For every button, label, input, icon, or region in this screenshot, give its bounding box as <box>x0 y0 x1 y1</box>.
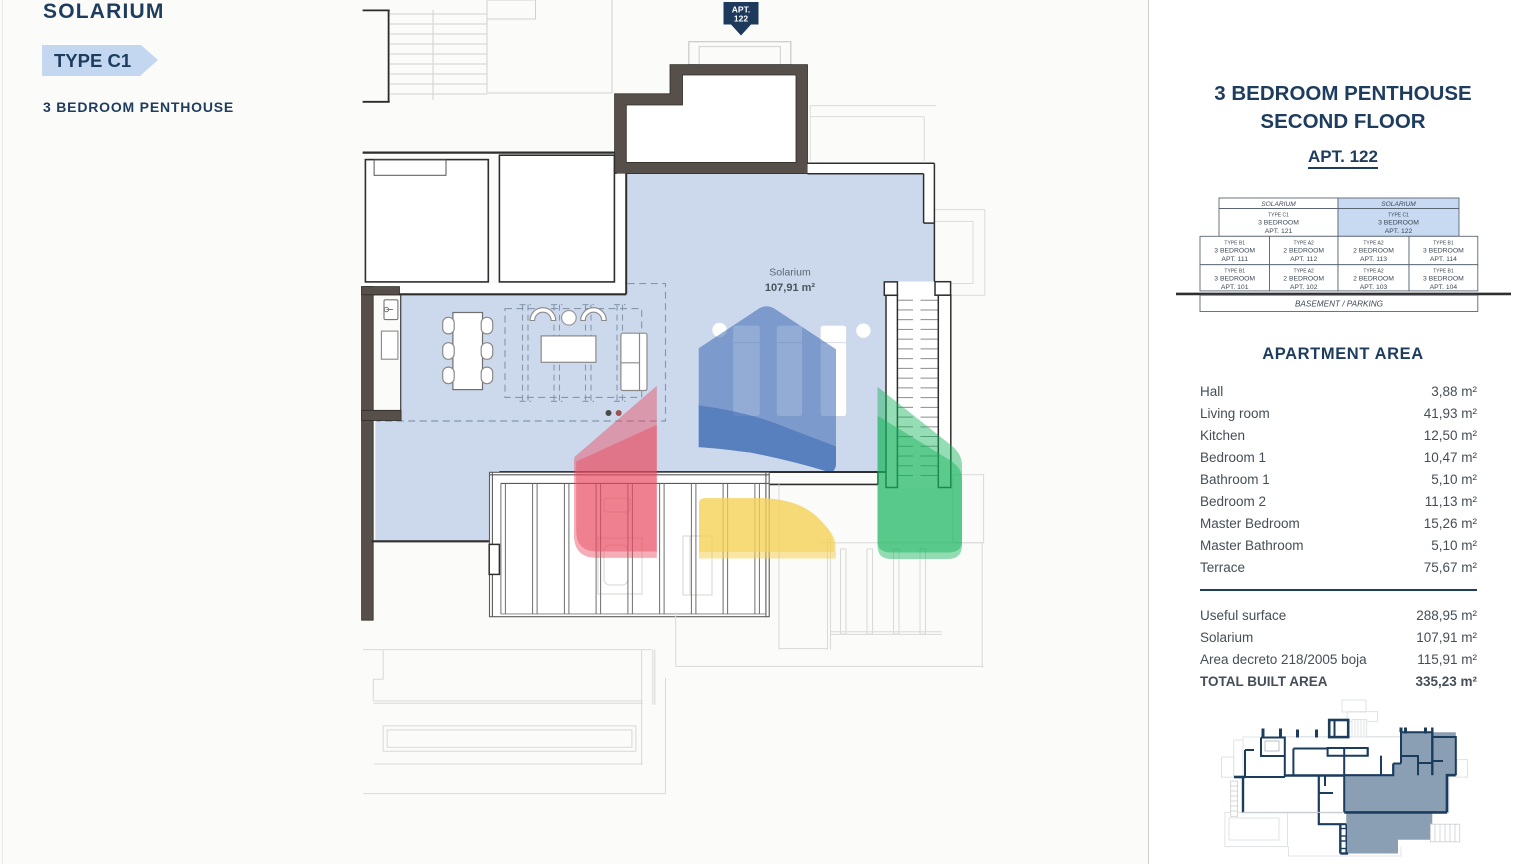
svg-text:TYPE C1: TYPE C1 <box>1268 213 1289 219</box>
svg-text:2 BEDROOM: 2 BEDROOM <box>1353 276 1394 283</box>
svg-text:2 BEDROOM: 2 BEDROOM <box>1353 248 1394 255</box>
svg-text:TYPE A2: TYPE A2 <box>1294 269 1315 275</box>
svg-text:APT. 113: APT. 113 <box>1360 256 1387 263</box>
svg-text:3 BEDROOM: 3 BEDROOM <box>1214 276 1255 283</box>
svg-text:122: 122 <box>734 14 748 24</box>
svg-text:TYPE A2: TYPE A2 <box>1363 269 1384 275</box>
svg-text:3 BEDROOM: 3 BEDROOM <box>1423 276 1464 283</box>
svg-text:3 BEDROOM: 3 BEDROOM <box>1378 220 1419 227</box>
svg-text:TYPE A2: TYPE A2 <box>1294 241 1315 247</box>
svg-text:TYPE B1: TYPE B1 <box>1433 241 1454 247</box>
svg-text:3 BEDROOM: 3 BEDROOM <box>1258 220 1299 227</box>
svg-text:Solarium: Solarium <box>769 267 811 279</box>
svg-text:SOLARIUM: SOLARIUM <box>1261 201 1296 208</box>
svg-text:APT. 103: APT. 103 <box>1360 284 1388 291</box>
svg-text:TYPE B1: TYPE B1 <box>1433 269 1454 275</box>
svg-text:3 BEDROOM: 3 BEDROOM <box>1214 248 1255 255</box>
svg-text:APT. 114: APT. 114 <box>1430 256 1457 263</box>
svg-text:APT. 121: APT. 121 <box>1265 228 1293 235</box>
svg-text:APT. 101: APT. 101 <box>1221 284 1249 291</box>
svg-text:TYPE C1: TYPE C1 <box>1388 213 1409 219</box>
svg-text:APT. 122: APT. 122 <box>1385 228 1413 235</box>
svg-text:TYPE A2: TYPE A2 <box>1363 241 1384 247</box>
svg-text:2 BEDROOM: 2 BEDROOM <box>1283 248 1324 255</box>
svg-text:2 BEDROOM: 2 BEDROOM <box>1283 276 1324 283</box>
svg-text:3 BEDROOM: 3 BEDROOM <box>1423 248 1464 255</box>
svg-text:APT. 104: APT. 104 <box>1430 284 1458 291</box>
svg-text:TYPE B1: TYPE B1 <box>1224 241 1245 247</box>
svg-text:APT. 102: APT. 102 <box>1290 284 1318 291</box>
svg-text:TYPE B1: TYPE B1 <box>1224 269 1245 275</box>
svg-text:BASEMENT / PARKING: BASEMENT / PARKING <box>1295 300 1384 309</box>
svg-text:APT. 112: APT. 112 <box>1290 256 1317 263</box>
svg-text:SOLARIUM: SOLARIUM <box>1381 201 1416 208</box>
svg-text:APT. 111: APT. 111 <box>1221 256 1248 263</box>
svg-text:107,91 m²: 107,91 m² <box>765 282 815 294</box>
